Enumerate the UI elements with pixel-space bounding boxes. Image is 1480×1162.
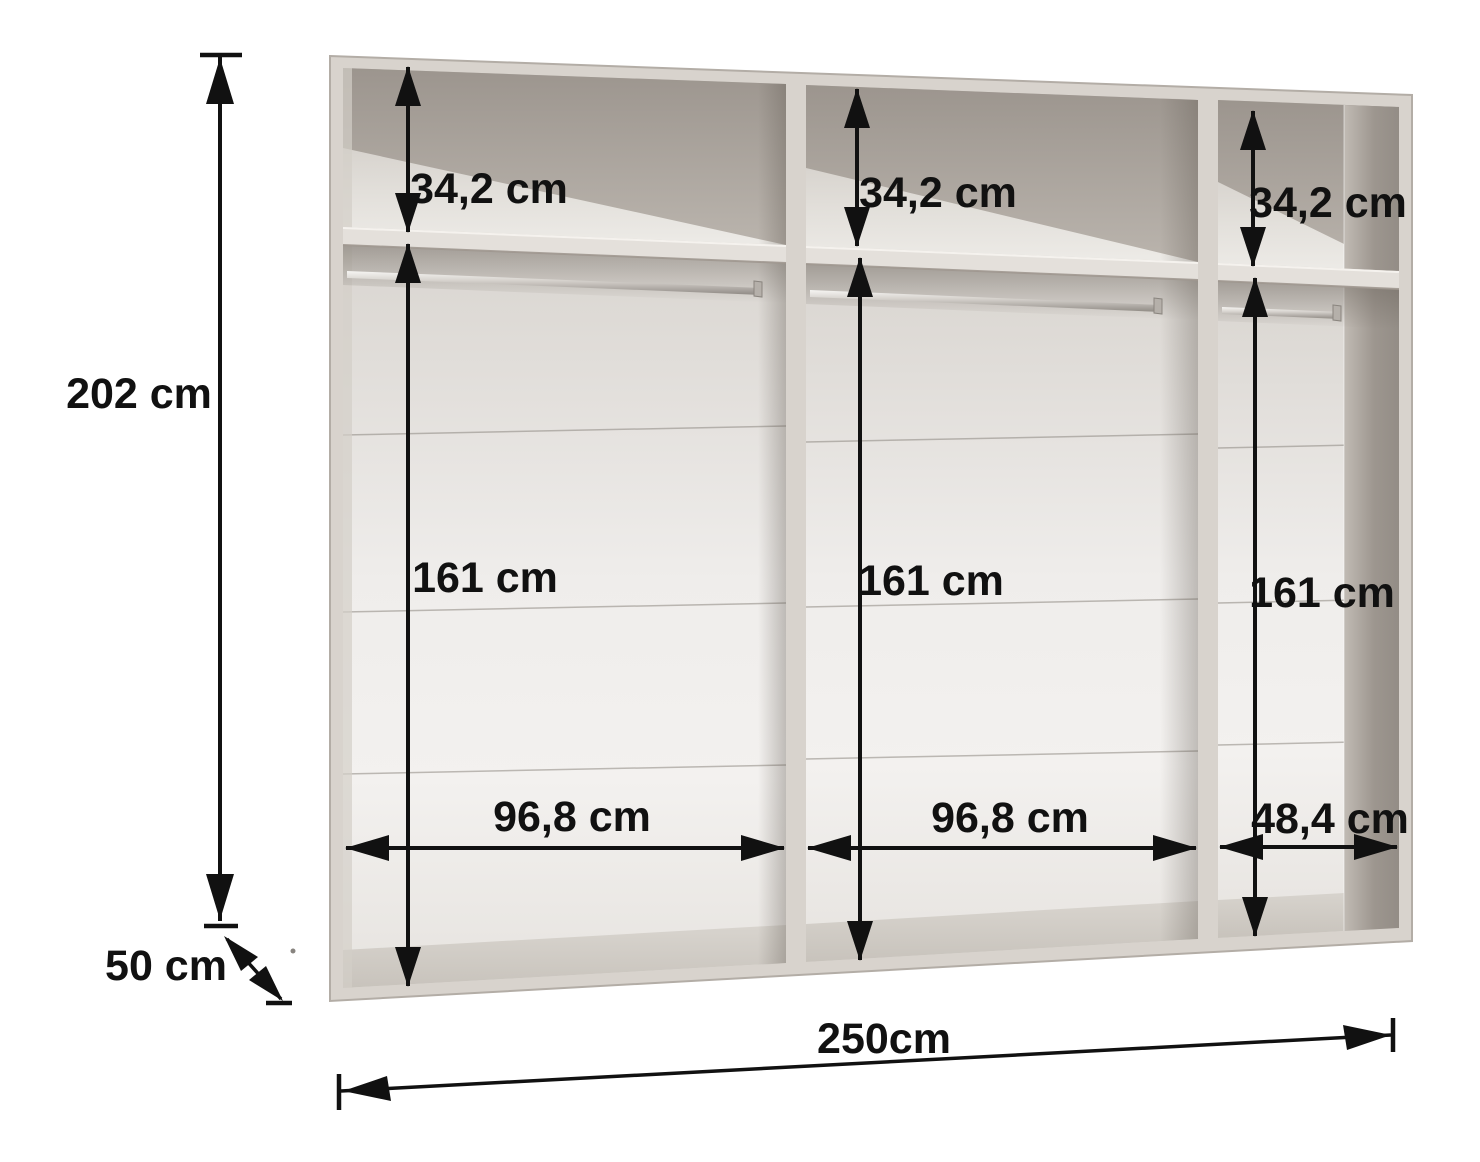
- arrow-up-icon: [206, 58, 234, 104]
- compartment-3-hanging-height-label: 161 cm: [1249, 569, 1395, 617]
- dim-depth: 50 cm: [105, 936, 292, 1003]
- compartment-2-shelf-height-label: 34,2 cm: [859, 169, 1017, 217]
- compartment-2-hanging-height-label: 161 cm: [858, 557, 1004, 605]
- compartment-1-shelf-height-label: 34,2 cm: [410, 165, 568, 213]
- arrow-right-icon: [1343, 1025, 1391, 1050]
- rail-bracket-2: [1154, 298, 1162, 314]
- compartment-1-right-side-shade: [758, 83, 786, 965]
- compartment-2-lower-backwall: [806, 264, 1198, 962]
- overall-height-label: 202 cm: [66, 370, 212, 418]
- dim-overall-height: 202 cm: [66, 55, 242, 926]
- rail-bracket-3: [1333, 305, 1341, 321]
- depth-label: 50 cm: [105, 942, 227, 990]
- speck: [291, 949, 296, 954]
- overall-width-label: 250cm: [817, 1015, 951, 1063]
- wardrobe-dimension-diagram: 202 cm 50 cm 34,2 cm 161 cm 96,8 cm 34,2…: [0, 0, 1480, 1162]
- compartment-3-width-label: 48,4 cm: [1251, 795, 1409, 843]
- arrow-down-icon: [206, 874, 234, 920]
- compartment-2-right-side-shade: [1160, 98, 1198, 941]
- arrow-left-icon: [343, 1076, 391, 1101]
- compartment-1-hanging-height-label: 161 cm: [412, 554, 558, 602]
- compartment-3-shelf-height-label: 34,2 cm: [1249, 179, 1407, 227]
- compartment-1-width-label: 96,8 cm: [493, 793, 651, 841]
- dim-overall-width: 250cm: [339, 1015, 1393, 1110]
- compartment-2-width-label: 96,8 cm: [931, 794, 1089, 842]
- rail-bracket-1: [754, 281, 762, 297]
